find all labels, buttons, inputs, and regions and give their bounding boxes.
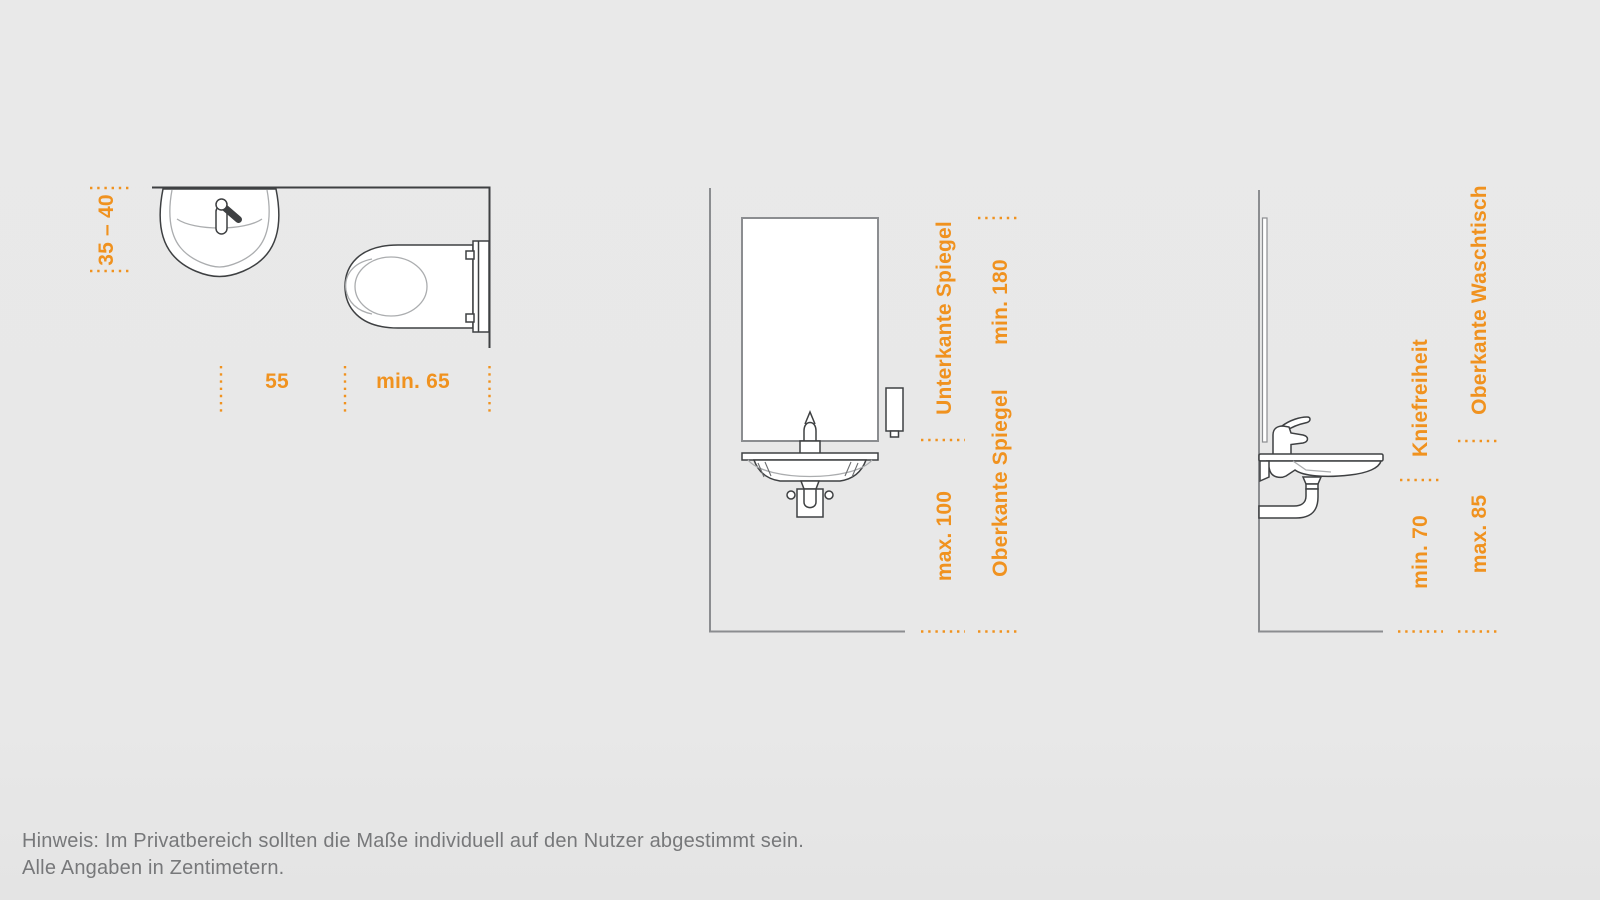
soap-dispenser-icon (886, 388, 903, 437)
dim-label-knee-clearance: min. 70 (1409, 515, 1433, 589)
dim-label-mirror-bottom: max. 100 (933, 491, 957, 581)
footnote-line-1: Hinweis: Im Privatbereich sollten die Ma… (22, 828, 804, 855)
label-knee-clearance: Kniefreiheit (1409, 339, 1433, 457)
bathroom-dimensions-diagram: 35 – 40 55 min. 65 Unterkante Spiegel ma… (0, 0, 1600, 900)
dim-label-basin-spacing: 55 (265, 370, 289, 394)
siphon (787, 481, 833, 517)
side-view (1259, 190, 1497, 632)
label-mirror-bottom-edge: Unterkante Spiegel (933, 221, 957, 415)
footnote: Hinweis: Im Privatbereich sollten die Ma… (22, 828, 804, 882)
front-view (710, 188, 1018, 632)
footnote-line-2: Alle Angaben in Zentimetern. (22, 855, 804, 882)
toilet-top-view (345, 241, 489, 332)
washbasin-front-view (742, 453, 878, 517)
drain-pipe (1259, 477, 1321, 518)
dim-label-wc-zone: min. 65 (376, 370, 450, 394)
label-basin-top-edge: Oberkante Waschtisch (1468, 185, 1492, 415)
diagram-canvas (0, 0, 1600, 900)
wall-floor-outline (1259, 190, 1383, 632)
label-mirror-top-edge: Oberkante Spiegel (989, 389, 1013, 577)
dim-label-wall-depth: 35 – 40 (95, 194, 119, 265)
mirror-side (1263, 218, 1268, 442)
dim-label-basin-top: max. 85 (1468, 495, 1492, 573)
dim-label-mirror-top: min. 180 (989, 259, 1013, 345)
washbasin-top-view (160, 189, 279, 277)
mirror-front (742, 218, 878, 441)
faucet-side-icon (1273, 417, 1310, 455)
